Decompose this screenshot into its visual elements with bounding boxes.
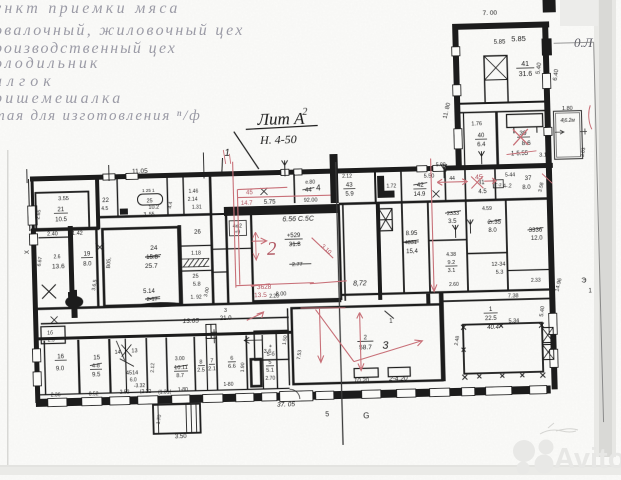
svg-text:2.12: 2.12 xyxy=(342,174,352,180)
svg-text:Г-2: Г-2 xyxy=(495,182,502,187)
svg-text:1 25 1: 1 25 1 xyxy=(142,188,155,193)
svg-text:8.0: 8.0 xyxy=(522,185,531,191)
svg-text:41: 41 xyxy=(521,61,529,68)
svg-text:92.00: 92.00 xyxy=(304,198,318,204)
svg-text:13.65: 13.65 xyxy=(183,318,200,325)
svg-text:3. 55: 3. 55 xyxy=(143,212,154,218)
svg-text:3.1: 3.1 xyxy=(448,268,456,274)
svg-text:ункт приемки мяса: ункт приемки мяса xyxy=(0,0,181,17)
svg-text:15,4: 15,4 xyxy=(406,249,418,255)
svg-text:Э: Э xyxy=(581,278,586,285)
svg-text:1. 92: 1. 92 xyxy=(191,295,202,301)
svg-text:5.50: 5.50 xyxy=(424,173,435,179)
svg-text:ришемешалка: ришемешалка xyxy=(0,90,123,107)
svg-text:8.7: 8.7 xyxy=(176,373,184,379)
svg-text:2.33: 2.33 xyxy=(531,278,541,284)
svg-text:14.7: 14.7 xyxy=(241,201,253,207)
svg-text:8.95: 8.95 xyxy=(406,231,418,237)
svg-text:5: 5 xyxy=(268,360,271,366)
svg-text:9.2: 9.2 xyxy=(447,260,455,266)
svg-text:1б: 1б xyxy=(47,330,53,336)
svg-text:Avito: Avito xyxy=(554,443,621,475)
svg-text:+: + xyxy=(269,344,272,350)
svg-text:2.52: 2.52 xyxy=(120,389,130,395)
svg-text:2-4.20: 2-4.20 xyxy=(388,375,408,383)
svg-text:8,72: 8,72 xyxy=(353,280,367,287)
svg-text:1.18: 1.18 xyxy=(191,251,201,257)
svg-text:21: 21 xyxy=(57,207,64,213)
svg-text:4.59: 4.59 xyxy=(482,206,492,212)
svg-text:8: 8 xyxy=(199,360,202,366)
svg-text:1.80: 1.80 xyxy=(562,106,573,112)
svg-text:7: 7 xyxy=(210,358,213,364)
svg-text:9.0: 9.0 xyxy=(56,366,65,372)
svg-text:19: 19 xyxy=(84,251,91,257)
svg-text:е.80: е.80 xyxy=(305,180,315,186)
svg-text:4-.2: 4-.2 xyxy=(503,183,512,189)
svg-text:45: 45 xyxy=(246,190,253,196)
svg-text:5.75: 5.75 xyxy=(264,200,276,206)
svg-text:3.00: 3.00 xyxy=(175,356,185,362)
svg-text:+529: +529 xyxy=(287,233,301,239)
svg-text:Н. 4-50: Н. 4-50 xyxy=(259,132,297,147)
svg-text:44: 44 xyxy=(449,176,455,182)
svg-text:4.5: 4.5 xyxy=(478,189,487,195)
svg-text:12-34: 12-34 xyxy=(491,262,505,268)
svg-text:5.8: 5.8 xyxy=(193,282,201,288)
svg-text:2.5: 2.5 xyxy=(48,337,55,343)
svg-text:5-44: 5-44 xyxy=(505,172,515,178)
svg-text:олодильник: олодильник xyxy=(0,55,100,72)
svg-text:37. 05: 37. 05 xyxy=(277,401,296,408)
svg-text:14.9: 14.9 xyxy=(414,192,426,198)
svg-text:10.20: 10.20 xyxy=(354,378,370,384)
svg-text:8.52: 8.52 xyxy=(89,391,99,397)
svg-text:16: 16 xyxy=(57,354,64,360)
svg-text:8.0: 8.0 xyxy=(488,228,497,234)
svg-text:2.36: 2.36 xyxy=(51,392,61,398)
svg-text:10.5: 10.5 xyxy=(55,217,67,223)
svg-text:9.5: 9.5 xyxy=(92,372,101,378)
svg-text:1.72: 1.72 xyxy=(386,183,396,189)
svg-text:овалочный, жиловочный цех: овалочный, жиловочный цех xyxy=(0,22,245,39)
svg-text:5.34: 5.34 xyxy=(508,318,519,324)
svg-text:2.5: 2.5 xyxy=(197,368,205,374)
svg-text:3.10: 3.10 xyxy=(539,152,550,158)
svg-text:26: 26 xyxy=(194,230,201,236)
svg-text:25: 25 xyxy=(192,274,198,280)
svg-text:5: 5 xyxy=(325,411,329,418)
svg-text:43: 43 xyxy=(346,183,353,189)
svg-text:В05,: В05, xyxy=(106,257,113,269)
svg-text:14: 14 xyxy=(114,350,120,356)
svg-text:37: 37 xyxy=(525,176,532,182)
svg-text:2.6: 2.6 xyxy=(54,254,61,260)
svg-text:4: 4 xyxy=(316,183,321,192)
svg-text:1.76: 1.76 xyxy=(471,121,482,127)
svg-text:1.42: 1.42 xyxy=(72,231,83,237)
svg-text:(1.31(: (1.31( xyxy=(158,389,172,395)
svg-text:2.60: 2.60 xyxy=(449,282,459,288)
svg-text:1-80.: 1-80. xyxy=(178,387,190,393)
svg-text:1.90: 1.90 xyxy=(240,362,247,372)
svg-text:24: 24 xyxy=(150,245,158,252)
svg-text:1-80: 1-80 xyxy=(223,382,233,388)
svg-text:5.3: 5.3 xyxy=(496,270,504,276)
svg-text:13: 13 xyxy=(131,348,137,354)
svg-text:2.14: 2.14 xyxy=(188,197,198,203)
svg-text:5.85: 5.85 xyxy=(494,40,506,46)
svg-text:2.77: 2.77 xyxy=(292,262,303,268)
svg-text:22.5: 22.5 xyxy=(485,316,497,322)
svg-text:2.1: 2.1 xyxy=(208,366,216,372)
svg-text:Х: Х xyxy=(25,250,31,254)
svg-text:40: 40 xyxy=(478,133,485,139)
svg-text:3.55: 3.55 xyxy=(58,196,69,202)
svg-text:1.31: 1.31 xyxy=(192,205,202,211)
svg-text:15: 15 xyxy=(93,355,100,361)
svg-text:22: 22 xyxy=(102,198,109,204)
svg-text:2: 2 xyxy=(302,107,307,118)
svg-text:13.5: 13.5 xyxy=(254,292,267,299)
svg-text:6.6: 6.6 xyxy=(228,364,236,370)
svg-text:5.14: 5.14 xyxy=(143,289,155,295)
svg-text:2.70: 2.70 xyxy=(265,376,275,382)
svg-text:2.40: 2.40 xyxy=(47,231,58,237)
svg-text:12.0: 12.0 xyxy=(531,236,543,242)
svg-text:13.6: 13.6 xyxy=(52,263,65,270)
svg-text:(2.22: (2.22 xyxy=(140,389,152,395)
svg-text:4.4: 4.4 xyxy=(167,201,174,209)
svg-text:1.46: 1.46 xyxy=(188,189,198,195)
svg-text:2: 2 xyxy=(267,239,278,260)
svg-text:25: 25 xyxy=(146,198,152,204)
svg-text:алгок: алгок xyxy=(0,73,56,90)
svg-text:8.0: 8.0 xyxy=(83,261,92,267)
svg-text:6: 6 xyxy=(230,356,233,362)
svg-text:4.38: 4.38 xyxy=(446,252,456,258)
svg-text:тая для изготовления ⁿ/ф: тая для изготовления ⁿ/ф xyxy=(0,108,202,124)
svg-text:11.05: 11.05 xyxy=(132,168,148,175)
svg-text:3.50: 3.50 xyxy=(175,434,187,440)
svg-text:2.12: 2.12 xyxy=(150,363,157,373)
svg-text:5.1: 5.1 xyxy=(266,368,274,374)
svg-text:31.6: 31.6 xyxy=(519,71,533,78)
svg-text:7. 00: 7. 00 xyxy=(483,10,498,17)
svg-text:4.5: 4.5 xyxy=(101,206,108,212)
svg-text:4514: 4514 xyxy=(126,370,138,376)
svg-text:5-б: 5-б xyxy=(267,352,275,358)
svg-text:3.5: 3.5 xyxy=(448,219,457,225)
svg-text:1: 1 xyxy=(224,148,230,159)
svg-text:7.38: 7.38 xyxy=(508,293,519,299)
svg-text:÷9: ÷9 xyxy=(235,230,241,236)
svg-text:6.56 С.5С: 6.56 С.5С xyxy=(282,216,315,224)
svg-text:25.7: 25.7 xyxy=(145,263,158,270)
svg-text:10.2: 10.2 xyxy=(148,205,159,211)
svg-text:5.85: 5.85 xyxy=(511,34,526,43)
svg-text:2.20: 2.20 xyxy=(269,294,279,300)
svg-text:4|6.2м: 4|6.2м xyxy=(560,118,575,124)
svg-text:40.4: 40.4 xyxy=(487,325,499,331)
svg-text:G: G xyxy=(363,411,369,420)
svg-text:6.4: 6.4 xyxy=(477,142,486,148)
svg-text:21.0: 21.0 xyxy=(220,316,232,322)
svg-text:5.9: 5.9 xyxy=(345,192,354,198)
svg-text:3: 3 xyxy=(224,308,227,314)
